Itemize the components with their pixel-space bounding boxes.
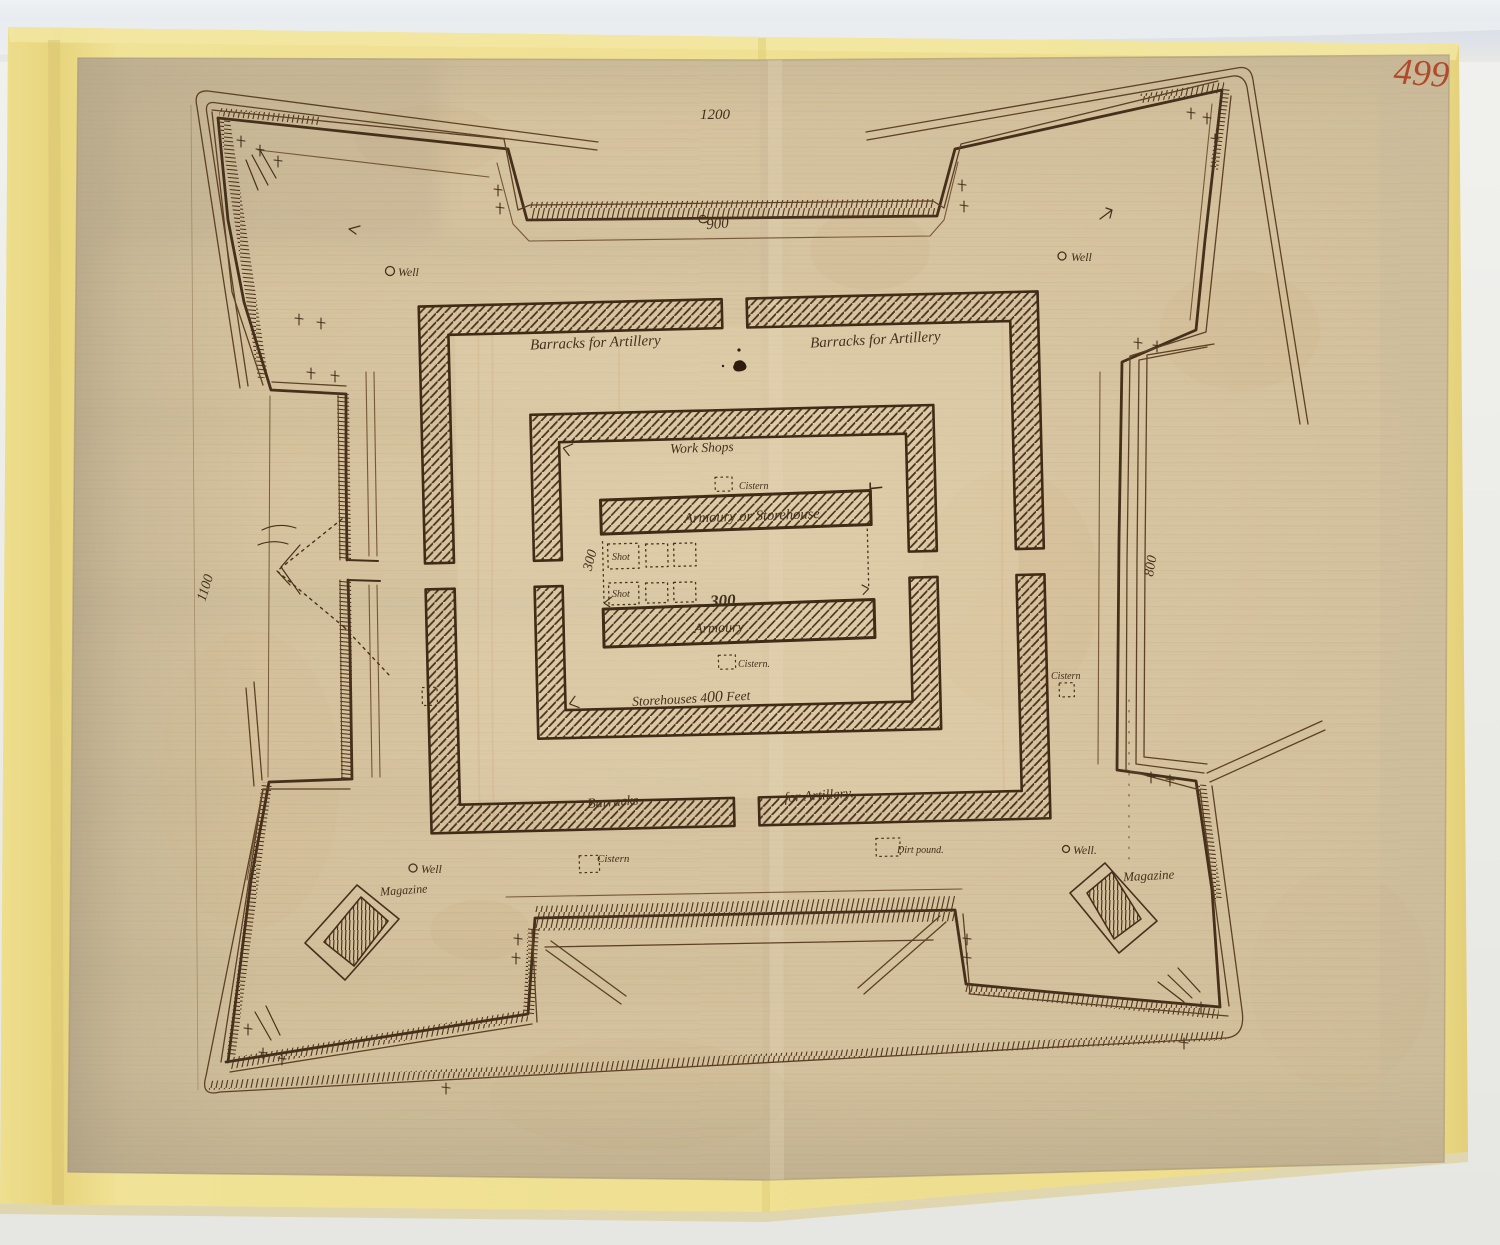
svg-text:Shot: Shot bbox=[612, 552, 630, 563]
svg-text:Cistern: Cistern bbox=[1051, 671, 1080, 682]
svg-text:499: 499 bbox=[1392, 51, 1450, 96]
svg-text:Well: Well bbox=[421, 862, 443, 876]
svg-text:Work Shops: Work Shops bbox=[670, 439, 734, 456]
svg-text:Well.: Well. bbox=[1073, 843, 1097, 857]
svg-text:Dirt pound.: Dirt pound. bbox=[896, 845, 944, 856]
svg-text:900: 900 bbox=[706, 216, 730, 234]
svg-text:Shot: Shot bbox=[612, 589, 630, 600]
svg-text:Cistern: Cistern bbox=[597, 853, 630, 865]
svg-text:Well: Well bbox=[398, 265, 420, 279]
svg-text:Cistern.: Cistern. bbox=[738, 659, 770, 670]
svg-text:Well: Well bbox=[1071, 250, 1093, 264]
svg-text:Armoury: Armoury bbox=[693, 620, 745, 637]
svg-text:1200: 1200 bbox=[700, 107, 731, 123]
svg-text:300: 300 bbox=[709, 590, 737, 610]
svg-text:Cistern: Cistern bbox=[739, 481, 768, 492]
svg-text:Magazine: Magazine bbox=[1122, 867, 1175, 885]
